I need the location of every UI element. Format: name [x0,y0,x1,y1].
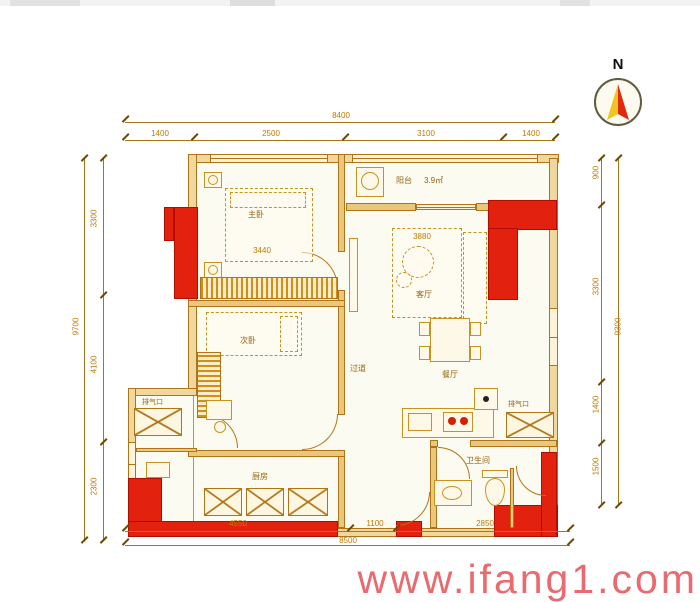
room-label-dining: 餐厅 [442,370,458,379]
vent-shaft-right [506,412,554,438]
balcony-slider-door [416,204,476,210]
wall-balcony-divider-left [346,203,416,211]
dim-top-total-line [125,122,555,123]
wall-mid-vertical-mid [338,290,345,415]
tea-table-small [396,272,412,288]
window-master-top [210,154,328,163]
vent-label-left: 排气口 [142,398,163,407]
bedroom2-pillow [280,316,298,352]
wall-bath-top-right [470,440,557,447]
dim-top-seg: 1400 [130,129,190,138]
dim-left-seg: 2300 [90,467,99,507]
interior-dim-master: 3440 [240,246,284,255]
sofa [463,232,487,324]
wall-master-bed2-divider [188,300,345,307]
vent-label-right: 排气口 [508,400,529,409]
dim-left-seg: 3300 [90,199,99,239]
kitchen-cabinet [288,488,328,516]
compass: N [590,56,646,148]
compass-north-label: N [590,56,646,73]
room-label-master-bedroom: 主卧 [248,210,264,219]
room-label-balcony: 阳台 [396,176,412,185]
sink [408,413,432,431]
top-artifact-block [560,0,590,6]
stove-burner [460,417,468,425]
bedroom2-chair [214,421,226,433]
dim-top-seg: 3100 [396,129,456,138]
wall-vent-niche-left [136,448,197,452]
wall-bed2-bottom [188,450,345,457]
kitchen-cabinet [246,488,284,516]
stove-burner [448,417,456,425]
master-lamp-top [208,175,218,185]
dining-chair [470,346,481,360]
kitchen-side-cabinet [146,462,170,478]
master-bed-pillows [230,192,306,208]
dining-chair [419,322,430,336]
dim-bottom-seg: 2850 [455,519,515,528]
room-label-kitchen: 厨房 [252,472,268,481]
top-artifact-strip [0,0,700,6]
toilet-tank [482,470,508,478]
bedroom2-desk [206,400,232,420]
dim-left-total: 9700 [72,307,81,347]
interior-dim-living: 3880 [400,232,444,241]
room-label-living: 客厅 [416,290,432,299]
dim-top-total: 8400 [311,111,371,120]
floor-plan-page: { "compass": { "label": "N" }, "watermar… [0,0,700,600]
dining-table [430,318,470,362]
window-balcony-top [352,154,538,163]
dim-tick [567,524,574,531]
dim-right-total: 9300 [614,307,623,347]
dim-left-seg-line [103,158,104,540]
dim-top-seg: 1400 [501,129,561,138]
dim-right-seg-line [601,158,602,505]
room-label-hallway: 过道 [350,364,366,373]
master-lamp-bottom [208,265,218,275]
dim-tick [598,501,605,508]
dim-tick [100,536,107,543]
kitchen-cabinet [204,488,242,516]
dim-left-total-line [84,158,85,540]
room-label-bedroom2: 次卧 [240,336,256,345]
compass-needle-icon [594,78,642,126]
dim-top-seg-line [125,140,555,141]
wall-mid-vertical-lower [338,450,345,528]
wall-annex-top [128,388,197,396]
dim-tick [615,501,622,508]
dim-right-seg: 1500 [592,447,601,487]
dining-chair [419,346,430,360]
dim-right-seg: 1400 [592,385,601,425]
dim-tick [552,115,559,122]
red-pier-right-v [488,228,518,300]
basin-bowl [442,486,462,500]
dim-right-seg: 3300 [592,267,601,307]
dim-left-seg: 4100 [90,345,99,385]
red-pier-left [174,207,198,299]
dim-tick [567,538,574,545]
red-pier-right-h [488,200,557,230]
fridge-dot [483,396,489,402]
dim-top-seg: 2500 [241,129,301,138]
top-artifact-block [10,0,80,6]
dining-chair [470,322,481,336]
balcony-area-label: 3.9㎡ [424,176,443,185]
tv-cabinet [349,238,358,312]
red-pier-left-step [164,207,174,241]
dim-tick [81,536,88,543]
dim-bottom-seg: 4550 [208,519,268,528]
wall-mid-vertical-upper [338,154,345,252]
watermark: www.ifang1.com [357,559,698,600]
room-label-bathroom: 卫生间 [466,456,490,465]
window-living-right [549,308,558,366]
wall-bath-top-left [430,440,438,447]
dim-bottom-total-line [125,545,570,546]
top-artifact-block [230,0,275,6]
dim-bottom-total: 8500 [318,536,378,545]
washing-machine-drum [361,172,379,190]
master-wardrobe [200,277,338,299]
vent-shaft-left [134,408,182,436]
